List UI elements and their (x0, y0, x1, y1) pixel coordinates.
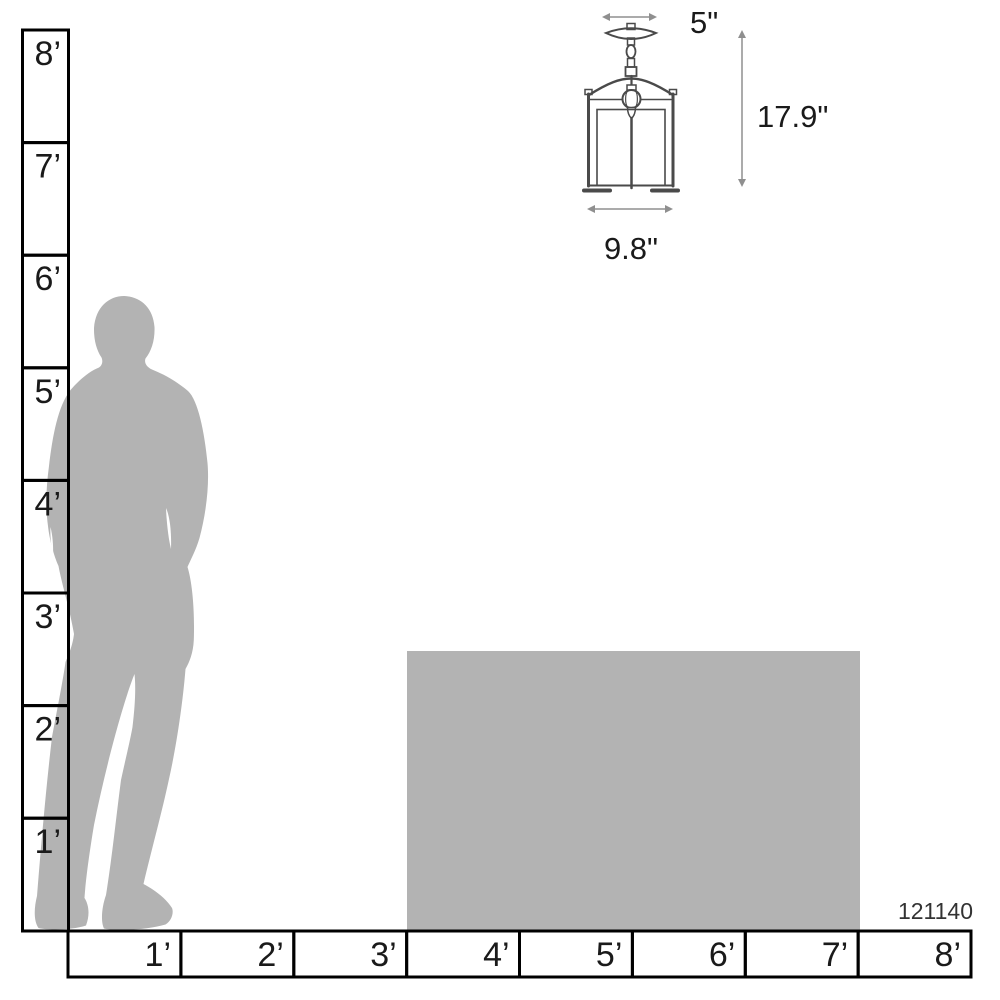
chain-link (627, 45, 636, 58)
vertical-ruler-label-3ft: 3’ (35, 598, 61, 636)
arrowhead-left-icon (587, 205, 595, 213)
horizontal-ruler-label-7ft: 7’ (822, 936, 848, 974)
product-number: 121140 (898, 898, 973, 924)
horizontal-ruler-label-8ft: 8’ (935, 936, 961, 974)
vertical-ruler-label-7ft: 7’ (35, 148, 61, 186)
horizontal-ruler-label-2ft: 2’ (257, 936, 283, 974)
horizontal-ruler-labels: 1’ 2’ 3’ 4’ 5’ 6’ 7’ 8’ (145, 936, 961, 974)
table-silhouette (407, 651, 860, 931)
dimension-arrows (587, 13, 746, 213)
vertical-ruler-label-8ft: 8’ (35, 35, 61, 73)
arrowhead-right-icon (649, 13, 657, 21)
arrowhead-down-icon (738, 179, 746, 187)
horizontal-ruler-label-5ft: 5’ (596, 936, 622, 974)
vertical-ruler-label-6ft: 6’ (35, 260, 61, 298)
chain-band (626, 67, 637, 76)
vertical-ruler-label-2ft: 2’ (35, 711, 61, 749)
vertical-ruler-label-4ft: 4’ (35, 485, 61, 523)
arrowhead-right-icon (665, 205, 673, 213)
vertical-ruler-label-1ft: 1’ (35, 823, 61, 861)
height-label: 17.9" (757, 99, 828, 134)
chain-coupler (628, 59, 635, 68)
vertical-ruler-label-5ft: 5’ (35, 373, 61, 411)
horizontal-ruler-label-6ft: 6’ (709, 936, 735, 974)
horizontal-ruler-label-3ft: 3’ (370, 936, 396, 974)
horizontal-ruler-label-1ft: 1’ (145, 936, 171, 974)
horizontal-ruler-label-4ft: 4’ (483, 936, 509, 974)
pendant-fixture-drawing (584, 24, 678, 191)
scale-diagram: 8’ 7’ 6’ 5’ 4’ 3’ 2’ 1’ 1’ 2’ 3’ 4’ 5’ 6… (0, 0, 1000, 1000)
scale-diagram-canvas: 8’ 7’ 6’ 5’ 4’ 3’ 2’ 1’ 1’ 2’ 3’ 4’ 5’ 6… (0, 0, 1000, 1000)
arrowhead-up-icon (738, 30, 746, 38)
arrowhead-left-icon (602, 13, 610, 21)
body-width-label: 9.8" (604, 231, 658, 266)
canopy-width-label: 5" (690, 5, 718, 40)
